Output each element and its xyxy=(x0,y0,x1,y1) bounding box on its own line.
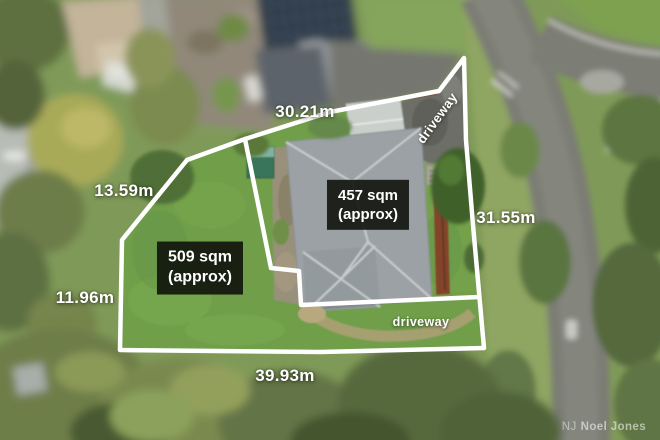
front-lot-approx: (approx) xyxy=(338,205,398,224)
aerial-photo: 30.21m 13.59m 11.96m 31.55m 39.93m drive… xyxy=(0,0,660,440)
measurement-top: 30.21m xyxy=(275,102,334,122)
measurement-bottom: 39.93m xyxy=(255,366,314,386)
area-label-rear-lot: 509 sqm (approx) xyxy=(157,242,243,295)
agency-watermark: NJNoel Jones xyxy=(562,421,646,433)
agency-name: Noel Jones xyxy=(581,421,646,433)
rear-lot-approx: (approx) xyxy=(168,268,232,288)
front-lot-area: 457 sqm xyxy=(338,186,398,205)
measurement-right: 31.55m xyxy=(476,208,535,228)
area-label-front-lot: 457 sqm (approx) xyxy=(327,180,409,230)
driveway-label-lower: driveway xyxy=(393,315,450,329)
measurement-upper-left: 13.59m xyxy=(94,181,153,201)
agency-logo-monogram: NJ xyxy=(562,421,577,433)
rear-lot-area: 509 sqm xyxy=(168,248,232,268)
measurement-lower-left: 11.96m xyxy=(56,288,115,308)
